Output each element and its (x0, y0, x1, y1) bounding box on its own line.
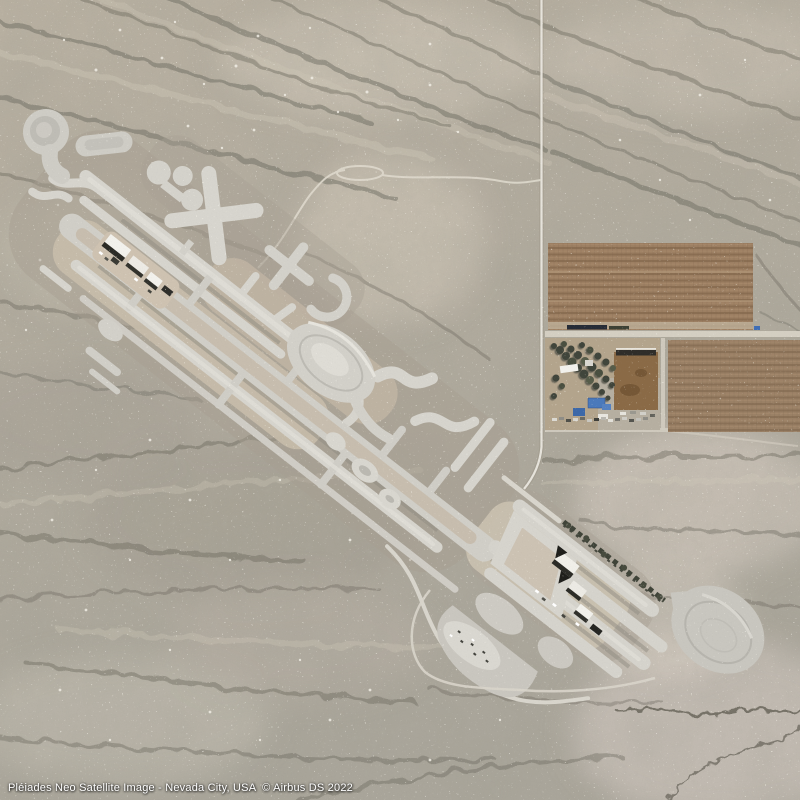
speckle-overlay (0, 0, 800, 800)
satellite-scene (0, 0, 800, 800)
image-credit: Pléiades Neo Satellite Image - Nevada Ci… (8, 782, 353, 795)
satellite-image: Pléiades Neo Satellite Image - Nevada Ci… (0, 0, 800, 800)
